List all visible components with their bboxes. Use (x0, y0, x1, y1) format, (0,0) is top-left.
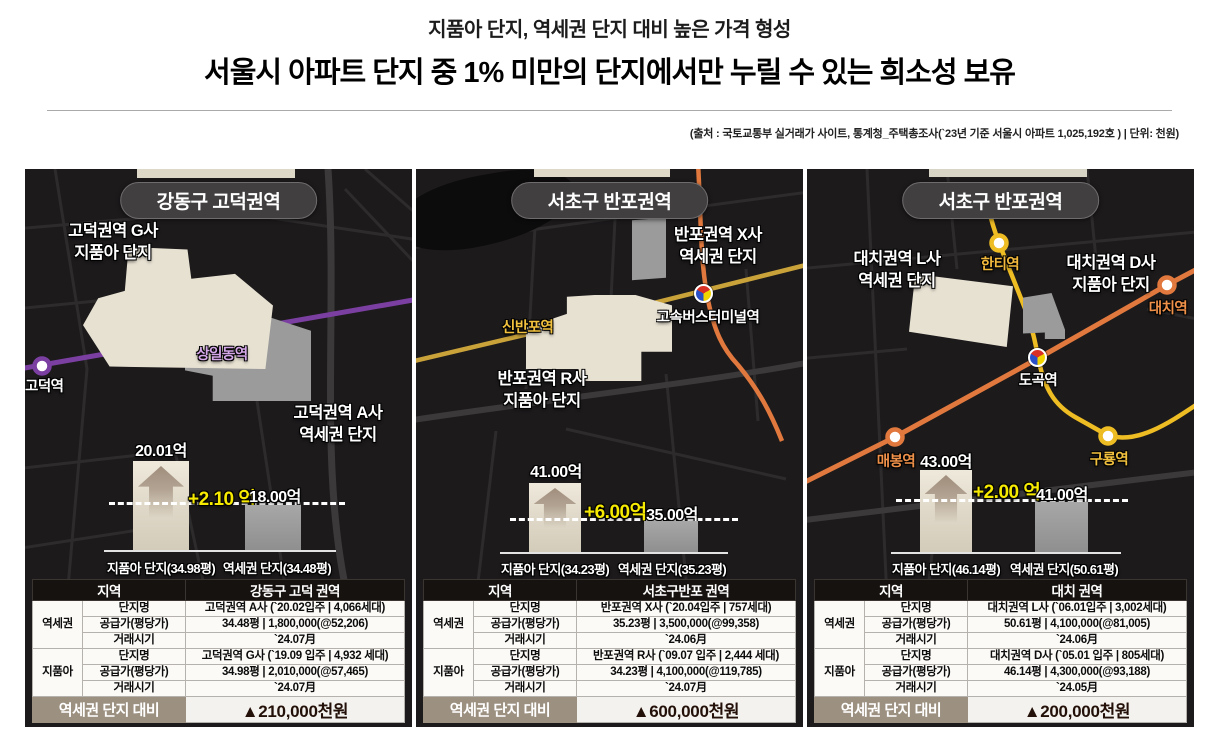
row-label: 공급가(평당가) (83, 617, 186, 633)
x-label-premium: 지품아 단지(34.98평) (107, 558, 215, 577)
row-value: 반포권역 R사 (`09.07 입주 | 2,444 세대) (577, 649, 796, 665)
source-note: (출처 : 국토교통부 실거래가 사이트, 통계청_주택총조사(`23년 기준 … (0, 125, 1179, 141)
row-value: 50.61평 | 4,100,000(@81,005) (968, 617, 1187, 633)
row-value: `24.07月 (186, 633, 405, 649)
x-label-premium: 지품아 단지(46.14평) (892, 559, 1000, 578)
area-label-jipuma: 고덕권역 G사 지품아 단지 (43, 221, 183, 265)
area-label-station-complex: 반포권역 X사 역세권 단지 (660, 225, 776, 269)
group-label: 지품아 (815, 649, 865, 697)
row-value: 35.23평 | 3,500,000(@99,358) (577, 617, 796, 633)
panel-title-badge: 서초구 반포권역 (902, 182, 1100, 219)
panel-gangdong-godeok: 강동구 고덕권역 고덕권역 G사 지품아 단지 고덕권역 A사 역세권 단지 고… (25, 169, 412, 727)
bar-station (644, 521, 698, 552)
row-value: `24.07月 (186, 681, 405, 697)
table-footer-value: ▲600,000천원 (577, 697, 796, 723)
bar-value-station: 18.00억 (249, 483, 301, 507)
row-value: 34.23평 | 4,100,000(@119,785) (577, 665, 796, 681)
bar-station (245, 505, 301, 550)
station-label-guryong: 구룡역 (1090, 448, 1129, 469)
area-label-jipuma: 반포권역 R사 지품아 단지 (478, 369, 606, 413)
row-value: 대치권역 L사 (`06.01입주 | 3,002세대) (968, 601, 1187, 617)
group-label: 역세권 (815, 601, 865, 649)
x-label-premium: 지품아 단지(34.23평) (501, 559, 609, 578)
comparison-table: 지역 강동구 고덕 권역 역세권 단지명 고덕권역 A사 (`20.02입주 |… (32, 579, 405, 723)
station-label-godeok: 고덕역 (25, 375, 64, 396)
table-header-region-value: 강동구 고덕 권역 (186, 580, 405, 601)
row-label: 거래시기 (865, 681, 968, 697)
row-label: 단지명 (865, 649, 968, 665)
header-subtitle: 지품아 단지, 역세권 단지 대비 높은 가격 형성 (0, 13, 1219, 42)
table-header-region: 지역 (33, 580, 186, 601)
row-label: 단지명 (474, 649, 577, 665)
row-label: 거래시기 (474, 633, 577, 649)
row-value: 34.98평 | 2,010,000(@57,465) (186, 665, 405, 681)
bar-station (1035, 502, 1088, 552)
table-footer-value: ▲200,000천원 (968, 697, 1187, 723)
table-header-region: 지역 (815, 580, 968, 601)
transfer-station-icon (1028, 348, 1047, 367)
x-label-station: 역세권 단지(34.48평) (223, 558, 331, 577)
row-label: 거래시기 (83, 681, 186, 697)
transfer-station-icon (694, 284, 713, 303)
panel-daechi: 서초구 반포권역 대치권역 L사 역세권 단지 대치권역 D사 지품아 단지 한… (807, 169, 1194, 727)
table-footer-label: 역세권 단지 대비 (424, 697, 577, 723)
station-label-dogok: 도곡역 (1019, 369, 1058, 390)
row-label: 단지명 (83, 649, 186, 665)
panel-row: 강동구 고덕권역 고덕권역 G사 지품아 단지 고덕권역 A사 역세권 단지 고… (25, 169, 1194, 727)
row-label: 공급가(평당가) (865, 665, 968, 681)
header-divider (47, 110, 1172, 111)
station-label-terminal: 고속버스터미널역 (657, 306, 760, 327)
row-value: 46.14평 | 4,300,000(@93,188) (968, 665, 1187, 681)
row-value: `24.06月 (968, 633, 1187, 649)
row-label: 단지명 (83, 601, 186, 617)
comparison-table: 지역 서초구반포 권역 역세권 단지명 반포권역 X사 (`20.04입주 | … (423, 579, 796, 723)
up-arrow-icon (138, 466, 184, 518)
panel-title-badge: 강동구 고덕권역 (120, 182, 318, 219)
panel-title-badge: 서초구 반포권역 (511, 182, 709, 219)
area-label-station-complex: 대치권역 L사 역세권 단지 (839, 249, 955, 293)
row-value: `24.06月 (577, 633, 796, 649)
price-diff-label: +2.00 억 (973, 477, 1040, 504)
row-label: 거래시기 (474, 681, 577, 697)
bar-value-premium: 43.00억 (920, 448, 972, 472)
header: 지품아 단지, 역세권 단지 대비 높은 가격 형성 서울시 아파트 단지 중 … (0, 0, 1219, 91)
row-label: 공급가(평당가) (865, 617, 968, 633)
panel-seocho-banpo: 서초구 반포권역 반포권역 X사 역세권 단지 반포권역 R사 지품아 단지 신… (416, 169, 803, 727)
page-title: 서울시 아파트 단지 중 1% 미만의 단지에서만 누릴 수 있는 희소성 보유 (0, 49, 1219, 91)
comparison-table: 지역 대치 권역 역세권 단지명 대치권역 L사 (`06.01입주 | 3,0… (814, 579, 1187, 723)
row-label: 단지명 (865, 601, 968, 617)
area-label-jipuma: 대치권역 D사 지품아 단지 (1051, 253, 1171, 297)
table-footer-label: 역세권 단지 대비 (33, 697, 186, 723)
station-label-maebong: 매봉역 (877, 450, 916, 471)
chart-baseline (104, 550, 336, 552)
row-value: 고덕권역 G사 (`19.09 입주 | 4,932 세대) (186, 649, 405, 665)
bar-premium (920, 470, 972, 552)
table-header-region-value: 대치 권역 (968, 580, 1187, 601)
row-value: `24.05月 (968, 681, 1187, 697)
infographic-page: 지품아 단지, 역세권 단지 대비 높은 가격 형성 서울시 아파트 단지 중 … (0, 0, 1219, 737)
row-value: 대치권역 D사 (`05.01 입주 | 805세대) (968, 649, 1187, 665)
row-label: 공급가(평당가) (474, 617, 577, 633)
chart-baseline (891, 552, 1121, 554)
station-label-sinbanpo: 신반포역 (502, 316, 553, 337)
row-value: 반포권역 X사 (`20.04입주 | 757세대) (577, 601, 796, 617)
station-label-hanti: 한티역 (981, 253, 1020, 274)
area-label-station-complex: 고덕권역 A사 역세권 단지 (273, 403, 403, 447)
x-label-station: 역세권 단지(50.61평) (1010, 559, 1118, 578)
up-arrow-icon (534, 488, 577, 528)
row-label: 거래시기 (83, 633, 186, 649)
row-label: 단지명 (474, 601, 577, 617)
group-label: 역세권 (424, 601, 474, 649)
table-header-region-value: 서초구반포 권역 (577, 580, 796, 601)
group-label: 역세권 (33, 601, 83, 649)
station-label-sangildong: 상일동역 (196, 343, 247, 364)
row-value: 34.48평 | 1,800,000(@52,206) (186, 617, 405, 633)
bar-value-premium: 41.00억 (530, 458, 582, 482)
bar-premium (133, 461, 189, 550)
table-header-region: 지역 (424, 580, 577, 601)
row-label: 공급가(평당가) (474, 665, 577, 681)
station-label-daechi: 대치역 (1149, 297, 1188, 318)
x-label-station: 역세권 단지(35.23평) (618, 559, 726, 578)
row-value: 고덕권역 A사 (`20.02입주 | 4,066세대) (186, 601, 405, 617)
chart-baseline (500, 552, 728, 554)
table-footer-label: 역세권 단지 대비 (815, 697, 968, 723)
row-label: 공급가(평당가) (83, 665, 186, 681)
bar-value-premium: 20.01억 (135, 437, 187, 461)
group-label: 지품아 (424, 649, 474, 697)
table-footer-value: ▲210,000천원 (186, 697, 405, 723)
row-label: 거래시기 (865, 633, 968, 649)
row-value: `24.07月 (577, 681, 796, 697)
group-label: 지품아 (33, 649, 83, 697)
price-diff-label: +6.00억 (584, 497, 647, 524)
